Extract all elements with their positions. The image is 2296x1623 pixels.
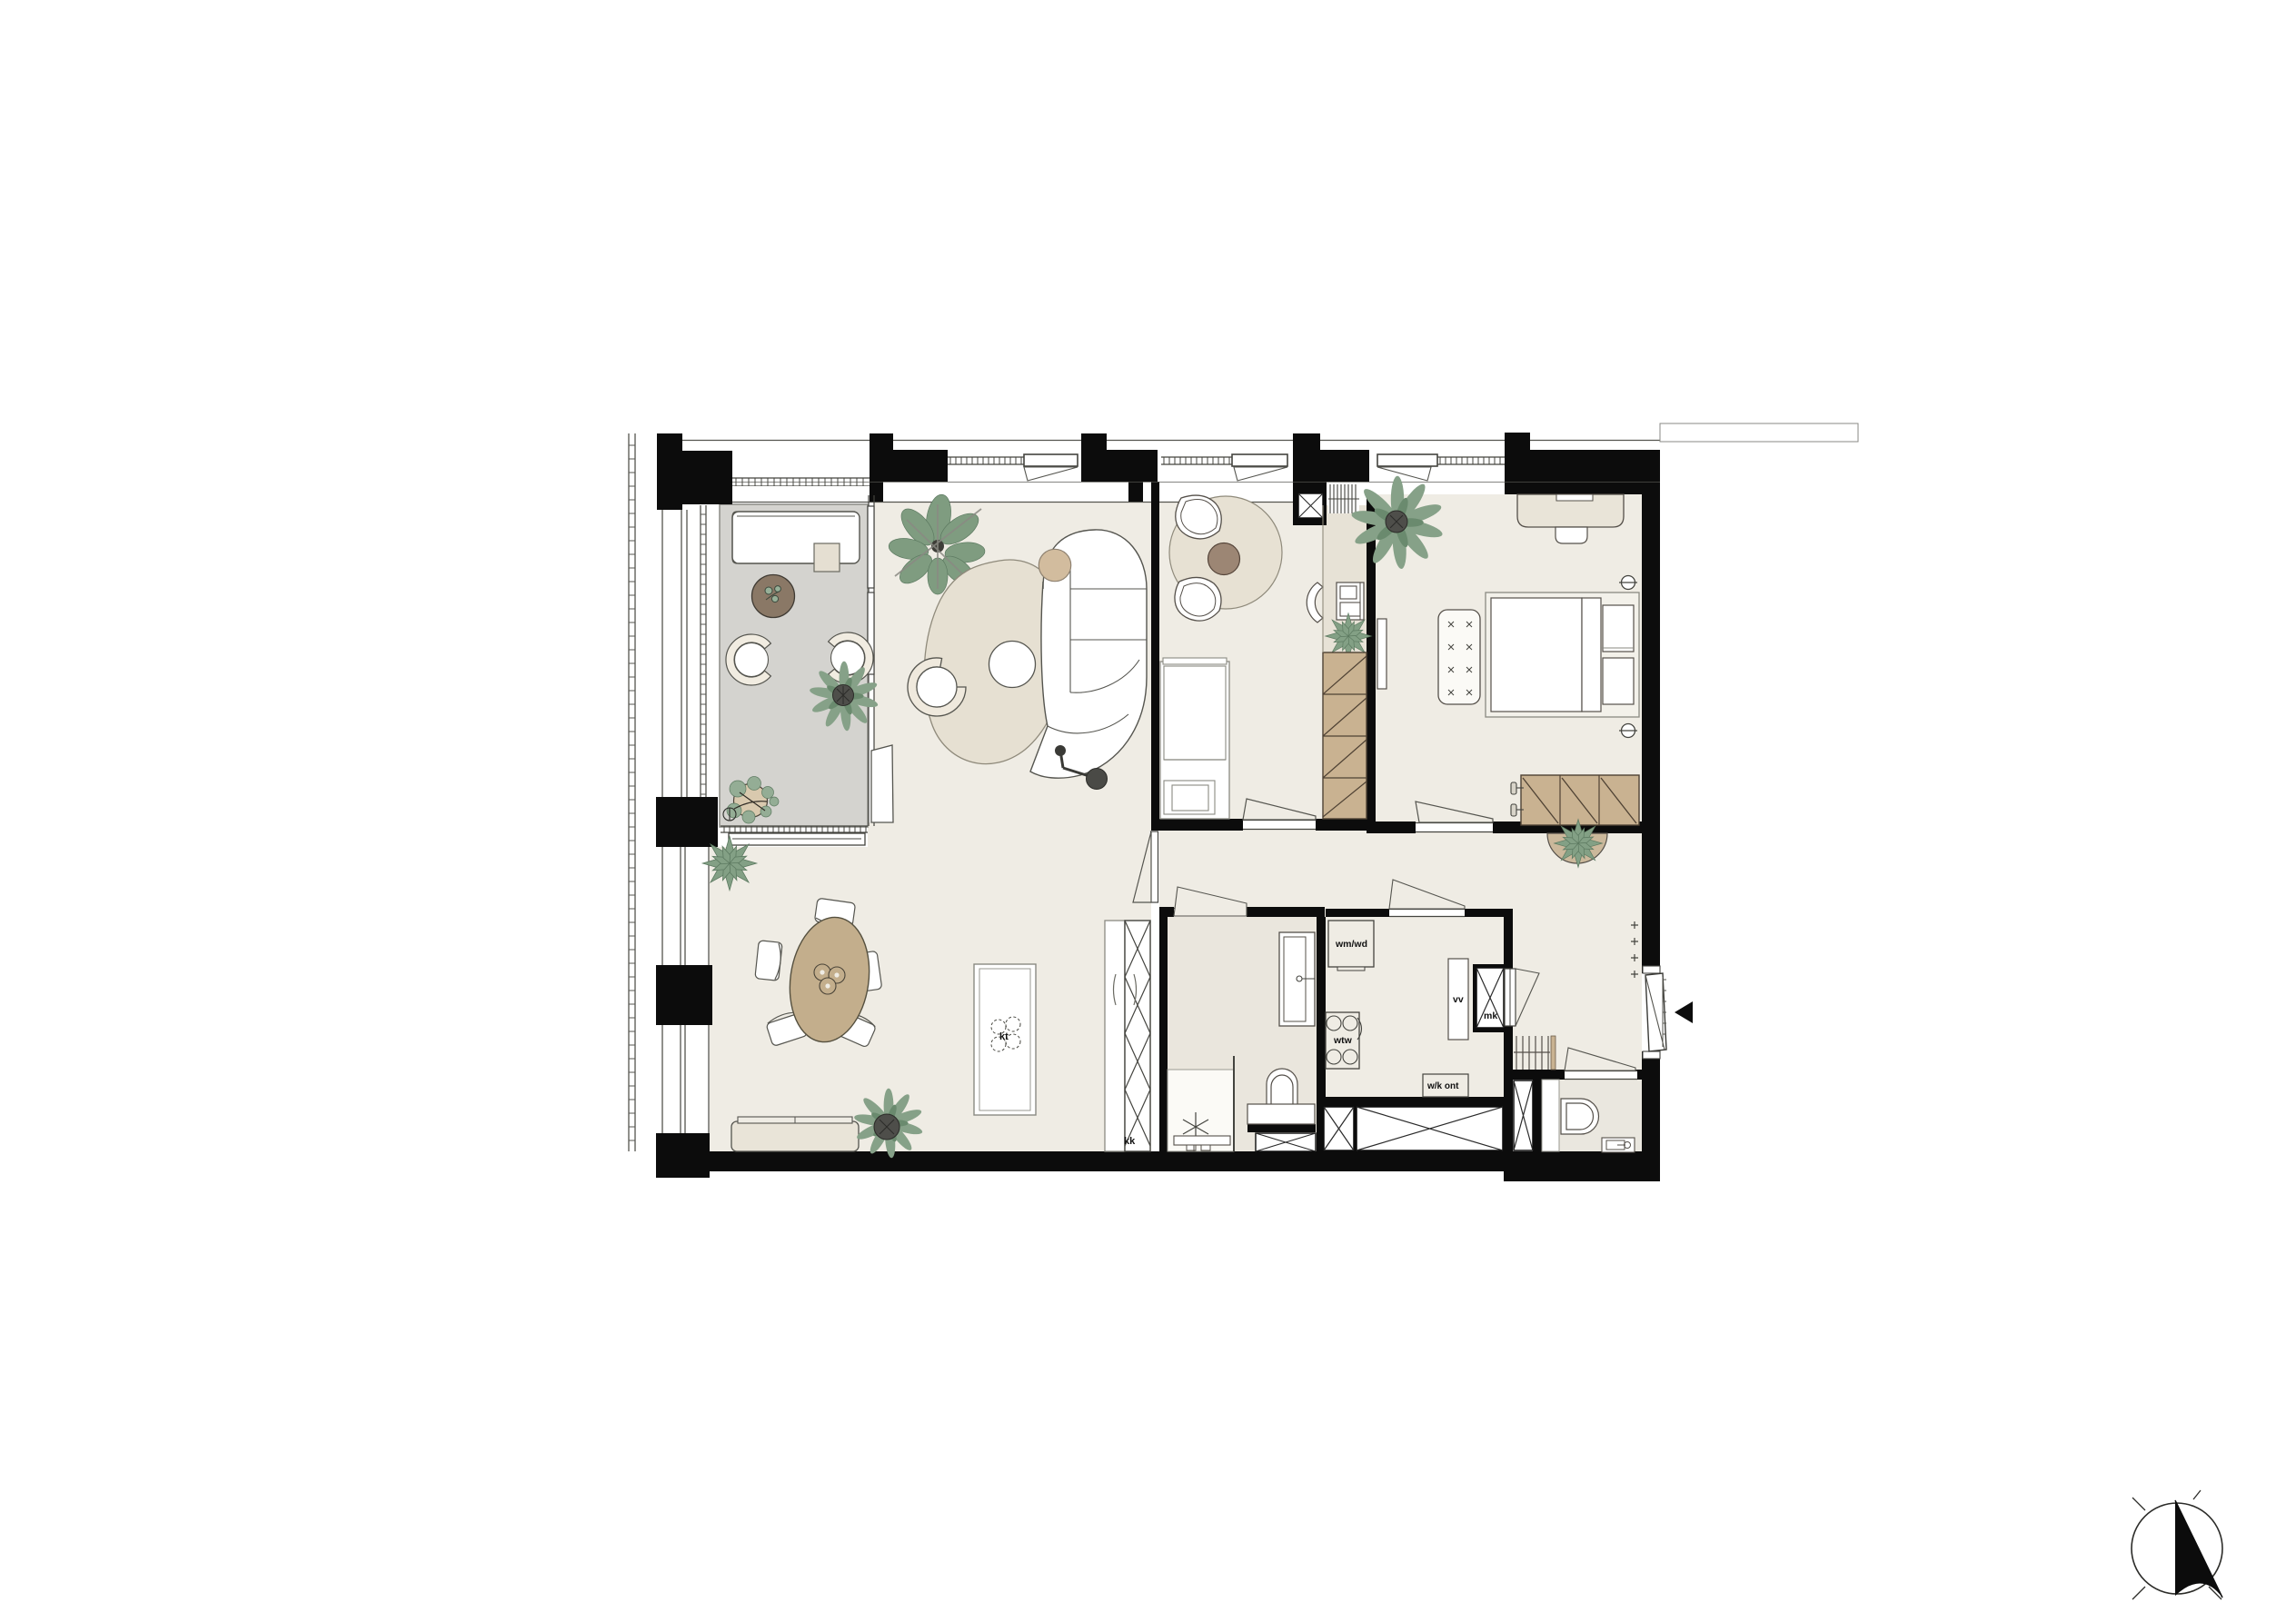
svg-text:wtw: wtw [1333, 1035, 1353, 1046]
svg-text:vv: vv [1453, 994, 1464, 1005]
svg-text:kt: kt [999, 1031, 1009, 1042]
svg-text:wm/wd: wm/wd [1335, 939, 1367, 950]
svg-text:kk: kk [1124, 1136, 1136, 1147]
svg-text:mk: mk [1484, 1011, 1497, 1021]
svg-text:w/k ont: w/k ont [1426, 1081, 1459, 1091]
